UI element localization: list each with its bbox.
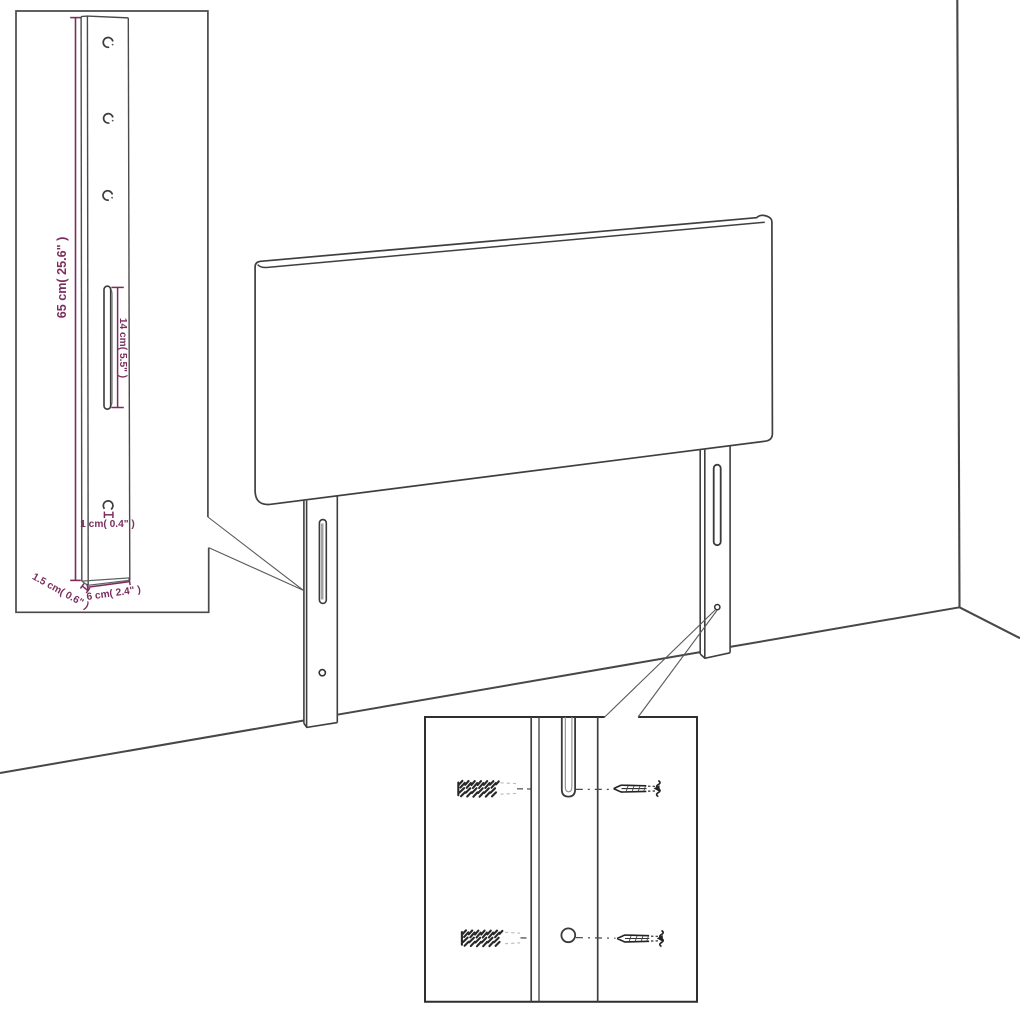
svg-text:14 cm( 5.5" ): 14 cm( 5.5" ) xyxy=(117,318,128,378)
svg-text:65 cm( 25.6" ): 65 cm( 25.6" ) xyxy=(55,237,69,319)
svg-text:1 cm( 0.4" ): 1 cm( 0.4" ) xyxy=(80,519,135,530)
svg-text:6 cm( 2.4" ): 6 cm( 2.4" ) xyxy=(86,584,142,603)
